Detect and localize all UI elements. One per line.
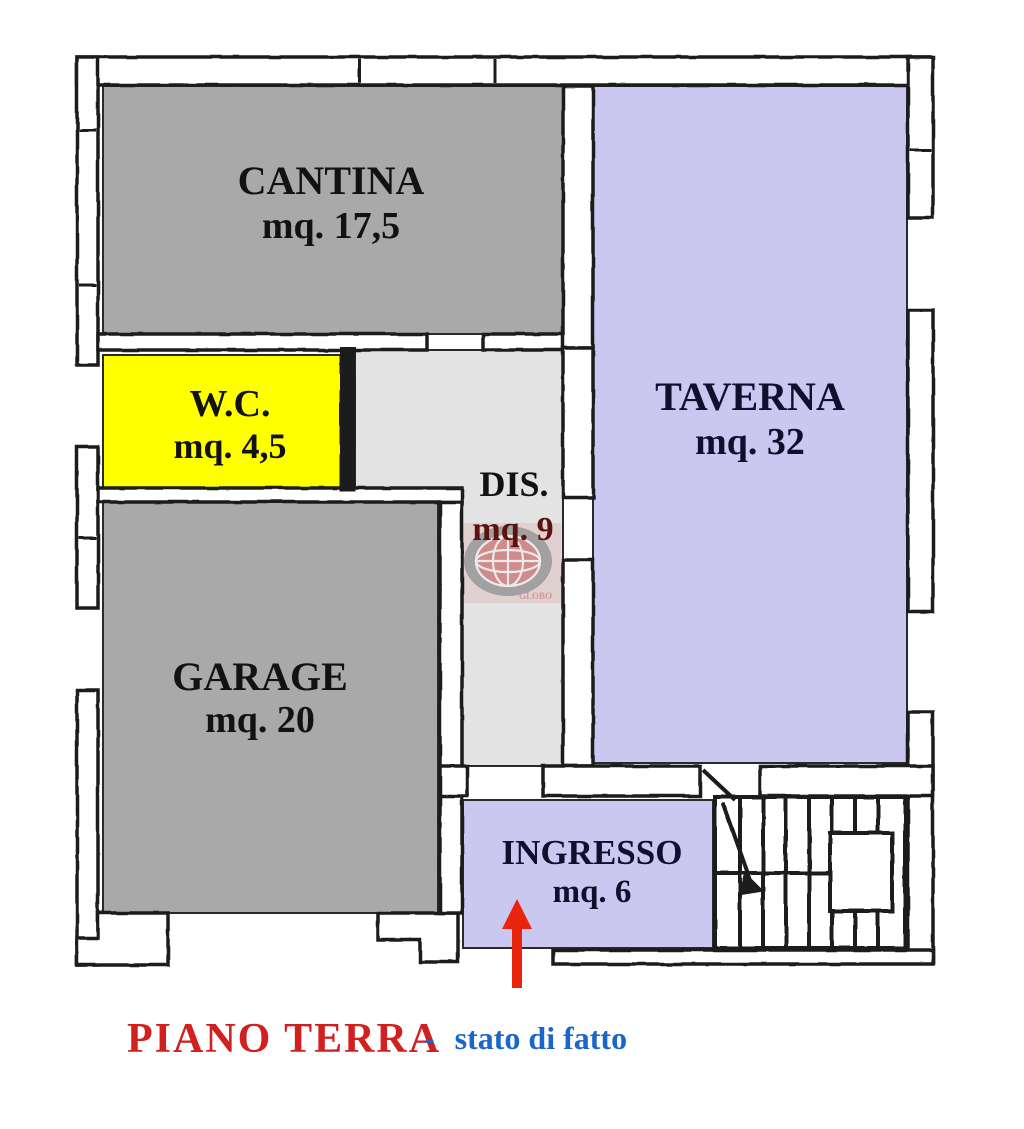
wall-segment <box>77 57 98 365</box>
label-taverna-name: TAVERNA <box>655 374 845 419</box>
wall-segment <box>563 560 593 766</box>
stair-landing <box>830 833 892 911</box>
label-ingresso-name: INGRESSO <box>502 833 683 872</box>
wall-segment <box>553 950 933 964</box>
wall-segment <box>563 86 593 348</box>
staircase <box>703 770 905 948</box>
wall-segment <box>908 57 933 218</box>
wc-right-wall <box>341 348 354 490</box>
wall-segment <box>543 766 700 796</box>
label-ingresso-area: mq. 6 <box>553 874 632 910</box>
caption-status-text: stato di fatto <box>455 1020 627 1056</box>
wall-segment <box>563 348 593 497</box>
label-cantina-name: CANTINA <box>238 158 425 203</box>
wall-segment <box>98 334 427 350</box>
watermark-text: GLOBO <box>519 591 552 601</box>
wall-segment <box>98 488 462 502</box>
wall-segment <box>77 57 930 85</box>
wall-segment <box>483 334 565 350</box>
label-garage-name: GARAGE <box>172 654 348 699</box>
label-cantina-area: mq. 17,5 <box>262 205 400 247</box>
wall-segment <box>908 310 933 612</box>
label-dis-name: DIS. <box>479 464 548 504</box>
wall-segment <box>378 913 458 962</box>
wall-segment <box>760 766 933 796</box>
caption-separator: - <box>424 1020 435 1056</box>
caption-floor: PIANO TERRA <box>127 1016 441 1062</box>
label-dis-area: mq. 9 <box>472 511 553 548</box>
label-wc-area: mq. 4,5 <box>173 426 286 466</box>
label-garage-area: mq. 20 <box>205 699 315 741</box>
wall-segment <box>440 502 462 913</box>
wall-segment <box>908 712 933 962</box>
wall-segment <box>77 690 98 965</box>
caption: PIANO TERRA -stato di fatto <box>127 1016 627 1062</box>
label-wc-name: W.C. <box>190 383 271 425</box>
floor-plan-canvas: GLOBO <box>0 0 1024 1129</box>
caption-status: -stato di fatto <box>424 1020 627 1056</box>
label-taverna-area: mq. 32 <box>695 421 805 463</box>
wall-segment <box>77 447 98 608</box>
wall-segment <box>440 766 467 796</box>
